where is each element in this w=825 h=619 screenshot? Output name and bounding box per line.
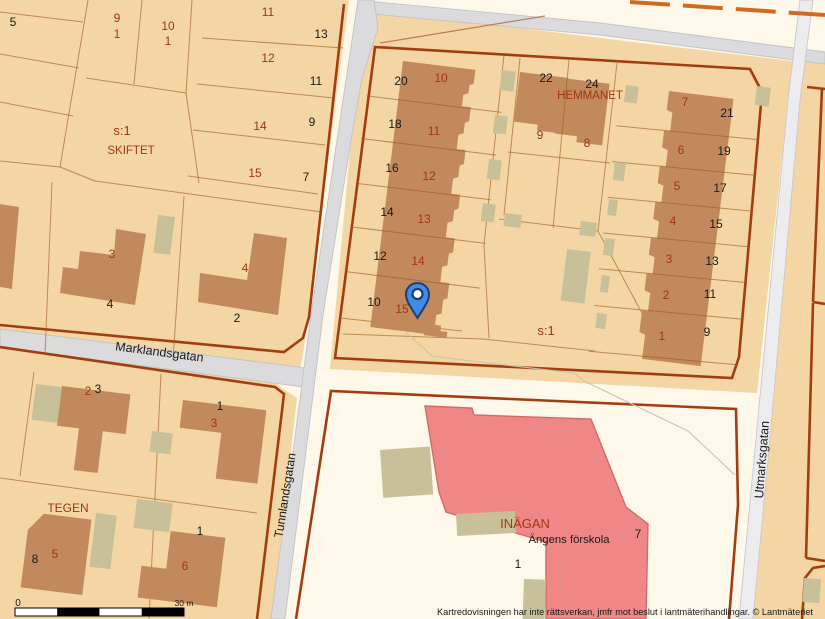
svg-text:10: 10	[367, 295, 381, 309]
svg-text:30 m: 30 m	[175, 598, 194, 608]
svg-text:5: 5	[10, 15, 17, 29]
svg-text:15: 15	[395, 302, 409, 316]
svg-text:2: 2	[85, 384, 92, 398]
svg-text:7: 7	[682, 95, 689, 109]
svg-text:18: 18	[388, 117, 402, 131]
svg-text:1: 1	[165, 34, 172, 48]
svg-text:INÄGAN: INÄGAN	[500, 516, 550, 531]
svg-text:9: 9	[309, 115, 316, 129]
svg-text:8: 8	[32, 552, 39, 566]
svg-text:11: 11	[310, 74, 323, 88]
svg-text:HEMMANET: HEMMANET	[557, 90, 623, 102]
svg-text:13: 13	[314, 27, 328, 41]
svg-text:4: 4	[670, 214, 677, 228]
svg-text:22: 22	[539, 71, 553, 85]
svg-text:11: 11	[704, 287, 717, 301]
svg-text:12: 12	[373, 249, 387, 263]
svg-text:TEGEN: TEGEN	[47, 501, 88, 515]
svg-text:6: 6	[182, 559, 189, 573]
svg-text:15: 15	[248, 166, 262, 180]
svg-text:3: 3	[109, 247, 116, 261]
svg-text:1: 1	[114, 27, 121, 41]
svg-text:7: 7	[635, 527, 642, 541]
svg-text:20: 20	[394, 74, 408, 88]
svg-text:2: 2	[234, 311, 241, 325]
svg-text:0: 0	[15, 598, 21, 609]
svg-text:19: 19	[717, 144, 731, 158]
svg-text:5: 5	[52, 547, 59, 561]
svg-text:9: 9	[704, 325, 711, 339]
svg-text:16: 16	[385, 161, 399, 175]
svg-text:14: 14	[380, 205, 394, 219]
svg-text:1: 1	[217, 399, 224, 413]
svg-text:13: 13	[705, 254, 719, 268]
svg-text:3: 3	[666, 252, 673, 266]
svg-text:5: 5	[674, 179, 681, 193]
svg-text:11: 11	[262, 5, 275, 19]
svg-text:12: 12	[422, 169, 436, 183]
svg-text:4: 4	[242, 261, 249, 275]
svg-text:4: 4	[107, 297, 114, 311]
svg-text:2: 2	[663, 288, 670, 302]
svg-text:9: 9	[537, 128, 544, 142]
svg-text:Ängens förskola: Ängens förskola	[528, 534, 610, 546]
svg-text:11: 11	[428, 124, 441, 138]
svg-text:12: 12	[261, 51, 275, 65]
svg-text:Kartredovisningen har inte rät: Kartredovisningen har inte rättsverkan, …	[437, 607, 813, 617]
svg-text:3: 3	[95, 382, 102, 396]
svg-text:9: 9	[114, 11, 121, 25]
svg-text:14: 14	[253, 119, 267, 133]
svg-text:3: 3	[211, 416, 218, 430]
svg-text:8: 8	[584, 136, 591, 150]
svg-text:6: 6	[678, 143, 685, 157]
svg-text:10: 10	[161, 19, 175, 33]
svg-text:s:1: s:1	[113, 123, 130, 138]
svg-text:1: 1	[659, 329, 666, 343]
svg-text:24: 24	[585, 77, 599, 91]
svg-text:7: 7	[303, 170, 310, 184]
svg-text:1: 1	[515, 557, 522, 571]
svg-text:s:1: s:1	[537, 323, 554, 338]
svg-text:17: 17	[713, 181, 727, 195]
svg-text:10: 10	[434, 71, 448, 85]
svg-text:14: 14	[411, 254, 425, 268]
svg-text:21: 21	[720, 106, 734, 120]
svg-text:13: 13	[417, 212, 431, 226]
svg-text:1: 1	[197, 524, 204, 538]
svg-text:SKIFTET: SKIFTET	[107, 145, 154, 157]
svg-text:15: 15	[709, 217, 723, 231]
